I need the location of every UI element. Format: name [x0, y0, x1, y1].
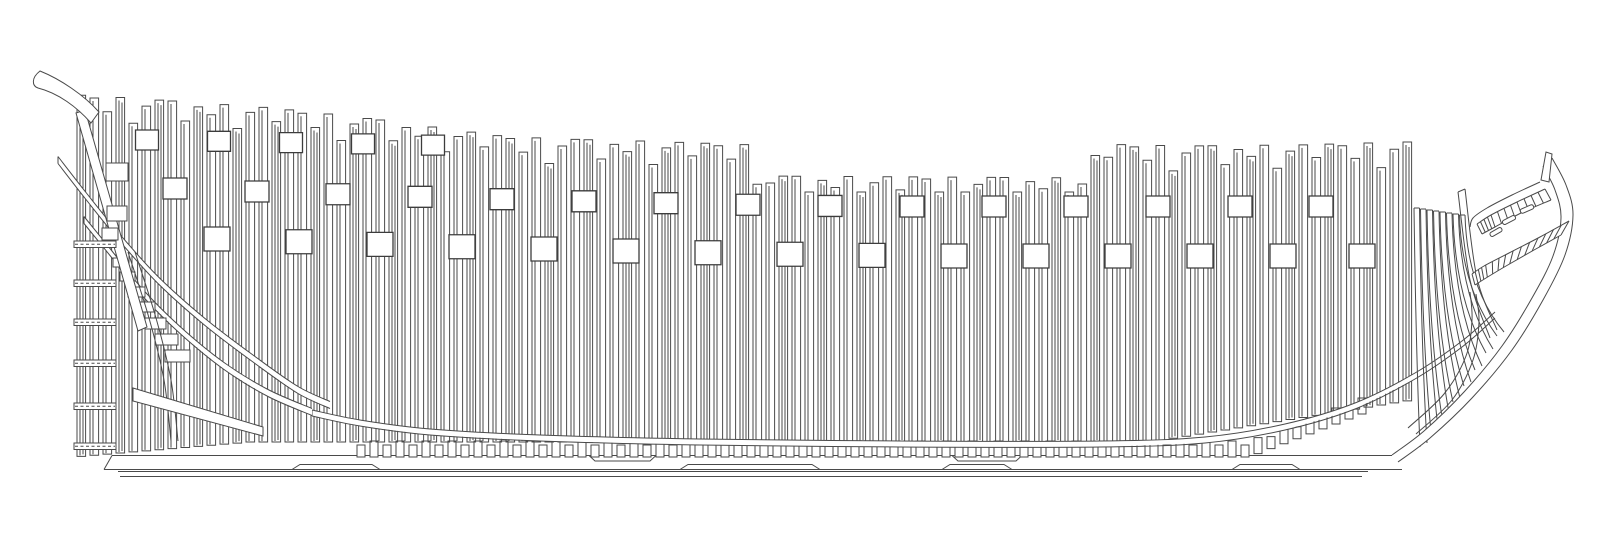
gunport-upper [422, 135, 445, 155]
keel-chock [695, 445, 703, 457]
stern-step-chock [155, 334, 178, 345]
frame-timber [1299, 145, 1308, 418]
knuckle-frame-cap [1458, 189, 1465, 192]
keel-chock [1293, 427, 1301, 439]
keel-chock [396, 441, 404, 457]
frames-group [77, 95, 1412, 456]
gunport-lower [1270, 244, 1296, 268]
gunport-middle [736, 194, 760, 215]
frame-timber [1377, 168, 1386, 405]
keel-chock [721, 445, 729, 457]
frame-timber [1026, 182, 1035, 442]
frame-timber [506, 139, 515, 442]
keel-scarph [292, 465, 380, 470]
frame-timber [1364, 143, 1373, 407]
keel-chock [617, 445, 625, 457]
gunport-lower [204, 227, 230, 251]
frame-timber [1104, 157, 1113, 442]
keel-chock [526, 441, 534, 457]
frame-timber [584, 140, 593, 442]
frame-timber [1130, 147, 1139, 442]
keel-chock [370, 441, 378, 457]
gunport-middle [1146, 196, 1170, 217]
frame-timber [467, 132, 476, 442]
frame-timber [1091, 155, 1100, 442]
keel-chock [799, 445, 807, 457]
keel-chock [448, 441, 456, 457]
frame-timber [233, 128, 242, 443]
frame-timber [168, 101, 177, 449]
frame-timber [441, 152, 450, 442]
frame-timber [740, 145, 749, 442]
cant-frame [1420, 208, 1428, 443]
keel-chock [1241, 445, 1249, 457]
gunport-middle [572, 191, 596, 212]
frame-timber [1390, 149, 1399, 403]
frame-timber [870, 183, 879, 442]
hull-framing-drawing [0, 0, 1600, 542]
keel-chock [773, 445, 781, 457]
gunport-lower [1105, 244, 1131, 268]
stern-detail-block [106, 163, 128, 181]
gunport-middle [163, 178, 187, 199]
frame-timber [1325, 144, 1334, 413]
keel-scarph [680, 465, 820, 470]
gunport-middle [818, 195, 842, 216]
frame-timber [857, 192, 866, 442]
frame-timber [207, 115, 216, 446]
keel-chock [591, 445, 599, 457]
keel-chock [1215, 445, 1223, 457]
frame-timber [1182, 153, 1191, 436]
frame-timber [1052, 178, 1061, 442]
keel-chock [409, 445, 417, 457]
frame-timber [1078, 184, 1087, 442]
keel-chock [1163, 445, 1171, 457]
frame-timber [1013, 192, 1022, 442]
frame-timber [77, 95, 86, 456]
tafferel-horn [33, 71, 99, 123]
gunport-lower [286, 230, 312, 254]
gunport-middle [654, 193, 678, 214]
frame-timber [974, 184, 983, 442]
cant-frame [1414, 208, 1420, 447]
frame-timber [181, 121, 190, 448]
keel-chock [383, 445, 391, 457]
gunport-lower [941, 244, 967, 268]
frame-timber [1117, 145, 1126, 442]
frame-timber [1403, 142, 1412, 401]
frame-timber [350, 124, 359, 442]
gunport-middle [245, 181, 269, 202]
frame-timber [662, 148, 671, 442]
frame-timber [194, 107, 203, 447]
frame-timber [363, 119, 372, 442]
frame-timber [454, 136, 463, 442]
keel-chock [1267, 437, 1275, 449]
frame-timber [285, 110, 294, 442]
gunport-upper [280, 133, 303, 153]
frame-timber [675, 142, 684, 442]
gunports-group [136, 130, 1376, 268]
bow-assembly [1392, 152, 1573, 462]
gunport-middle [900, 196, 924, 217]
frame-timber [493, 136, 502, 442]
frame-timber [1195, 146, 1204, 434]
keel-chock [461, 445, 469, 457]
frame-timber [1234, 150, 1243, 428]
gunport-lower [1187, 244, 1213, 268]
keel-chock [474, 441, 482, 457]
stern-detail-block [102, 228, 118, 240]
keel-chock [643, 445, 651, 457]
keel-chock [487, 445, 495, 457]
frame-timber [805, 192, 814, 442]
gunport-lower [859, 243, 885, 267]
garboard-chocks-group [357, 398, 1366, 457]
frame-timber [701, 143, 710, 442]
gunport-lower [777, 242, 803, 266]
gunport-lower [695, 241, 721, 265]
stern-step-chock [165, 350, 190, 362]
frame-timber [792, 176, 801, 442]
gunport-upper [352, 134, 375, 154]
keel-chock [669, 445, 677, 457]
frame-timber [896, 190, 905, 442]
frame-timber [480, 147, 489, 442]
frame-timber [376, 120, 385, 442]
keel-fore-end [104, 456, 112, 470]
frame-timber [389, 141, 398, 442]
keel-chock [500, 441, 508, 457]
stern-detail-block [107, 206, 127, 221]
gunport-lower [1349, 244, 1375, 268]
frame-timber [753, 184, 762, 442]
frame-timber [961, 192, 970, 442]
frame-timber [818, 180, 827, 442]
frame-timber [688, 156, 697, 442]
gunport-lower [367, 232, 393, 256]
frame-timber [623, 152, 632, 442]
gunport-lower [613, 239, 639, 263]
keel-chock [552, 441, 560, 457]
frame-timber [1273, 168, 1282, 421]
frame-timber [948, 177, 957, 442]
gunport-middle [982, 196, 1006, 217]
frame-timber [831, 187, 840, 442]
frame-timber [1039, 189, 1048, 442]
gunport-lower [449, 235, 475, 259]
frame-timber [1286, 151, 1295, 419]
frame-timber [1260, 145, 1269, 423]
keel-chock [1228, 441, 1236, 457]
frame-timber [324, 114, 333, 442]
keel-chock [357, 445, 365, 457]
keel-chock [435, 445, 443, 457]
keel-chock [422, 441, 430, 457]
frame-timber [1338, 146, 1347, 411]
gunport-upper [208, 131, 231, 151]
frame-timber [571, 139, 580, 442]
frame-timber [883, 177, 892, 442]
keel-chock [1254, 438, 1262, 454]
stem-outer [1398, 158, 1573, 462]
stern-step-chock [145, 318, 166, 329]
gunport-middle [1309, 196, 1333, 217]
keel-chock [747, 445, 755, 457]
frame-timber [1208, 146, 1217, 432]
stern-assembly [33, 71, 330, 450]
keel-group [104, 456, 1402, 477]
frame-timber [922, 179, 931, 442]
frame-timber [766, 183, 775, 442]
frame-timber [532, 138, 541, 442]
frame-timber [636, 141, 645, 442]
frame-timber [558, 146, 567, 442]
gunport-upper [136, 130, 159, 150]
frame-timber [220, 105, 229, 445]
keel-scarph [1232, 465, 1300, 470]
keel-chock [1189, 445, 1197, 457]
frame-timber [1156, 146, 1165, 441]
frame-timber [428, 127, 437, 442]
frame-timber [1065, 192, 1074, 442]
frame-timber [714, 146, 723, 442]
frame-timber [597, 159, 606, 442]
deadwood-wedge [133, 388, 263, 436]
keel-chock [513, 445, 521, 457]
gunport-lower [1023, 244, 1049, 268]
keel-chock [1137, 445, 1145, 457]
keel-chock [539, 445, 547, 457]
keel-chock [578, 441, 586, 457]
frame-timber [844, 177, 853, 442]
gunport-lower [531, 237, 557, 261]
gunport-middle [1228, 196, 1252, 217]
gunport-middle [490, 189, 514, 210]
frame-timber [1351, 158, 1360, 409]
bilge-ribband [312, 318, 1495, 447]
gunport-middle [326, 184, 350, 205]
frame-timber [246, 112, 255, 442]
frame-timber [935, 192, 944, 442]
frame-timber [545, 163, 554, 442]
gunport-middle [1064, 196, 1088, 217]
frame-timber [727, 159, 736, 442]
keel-chock [565, 445, 573, 457]
gunport-middle [408, 186, 432, 207]
frame-timber [610, 144, 619, 442]
frame-timber [779, 176, 788, 442]
frame-timber [519, 152, 528, 442]
ship-framing-diagram [0, 0, 1600, 542]
ribband-group [312, 312, 1495, 447]
frame-timber [402, 128, 411, 442]
keel-scarph [942, 465, 1012, 470]
frame-timber [415, 136, 424, 442]
bilge-ribband-fill [312, 312, 1495, 447]
